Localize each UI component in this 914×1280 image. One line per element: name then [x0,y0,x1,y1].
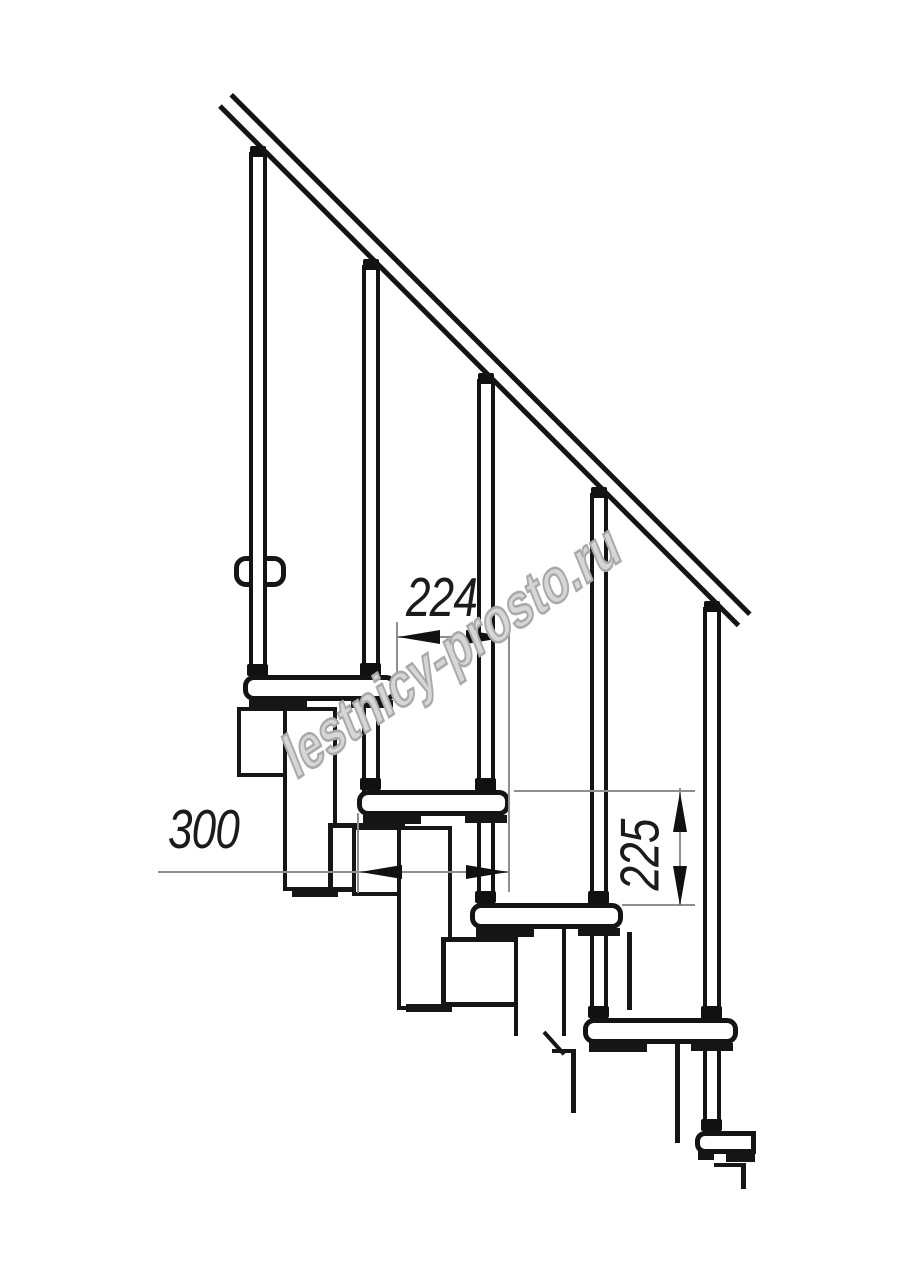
support-flange-1 [292,889,338,897]
support-dangle-line-4b [675,1043,680,1143]
baluster-1-foot [247,664,268,676]
dim-224-arrow-right-icon [466,630,508,644]
tread-4-flange-b [691,1043,733,1051]
dim-300-ext-left [357,813,359,893]
baluster-5-collar [701,1006,722,1019]
baluster-2-foot [360,778,381,790]
dim-300-arrow-right-icon [466,865,508,879]
tread-1-flange-a [249,700,307,709]
baluster-4 [590,493,608,1020]
dim-224-arrow-left-icon [398,630,440,644]
dim-300-label: 300 [168,802,239,857]
baluster-3-collar [475,778,496,791]
tread-2-flange-a [363,815,421,824]
baluster-2 [362,265,380,792]
baluster-4-collar [588,891,609,904]
baluster-3-foot [475,891,496,903]
tread-2 [357,790,510,816]
dim-225-arrow-down-icon [673,866,687,906]
support-step-line-5v [741,1163,746,1189]
baluster-2-collar [360,663,381,676]
tread-3-flange-a [476,928,534,937]
support-step-line-5h [714,1163,744,1167]
tread-1-flange-b [351,700,393,708]
dim-225-label: 225 [612,817,668,893]
tread-5-partial [695,1131,756,1154]
dim-224-label: 224 [406,570,477,625]
baluster-5-foot [701,1119,722,1131]
support-square-box-2 [441,937,519,1007]
tread-4-flange-a [589,1043,647,1052]
baluster-5 [703,607,721,1133]
support-flange-2 [406,1004,452,1012]
dim-300-line [158,871,509,873]
dim-224-ext-right [508,624,510,892]
dim-225-ext-top [514,790,695,792]
support-dangle-line-3 [627,932,632,1010]
tread-4 [583,1018,738,1044]
staircase-drawing: 224 300 225 lestnicy-prosto.ru [0,0,914,1280]
support-tall-box-3-cut [514,928,566,1036]
tread-3 [470,903,623,929]
dim-300-arrow-left-icon [360,865,402,879]
tread-3-flange-b [578,928,620,936]
baluster-4-foot [588,1006,609,1018]
dim-225-arrow-up-icon [673,792,687,832]
tread-2-flange-b [465,815,507,823]
baluster-1 [249,152,267,678]
tread-1 [243,675,397,701]
support-dangle-line-4a [571,1049,576,1113]
